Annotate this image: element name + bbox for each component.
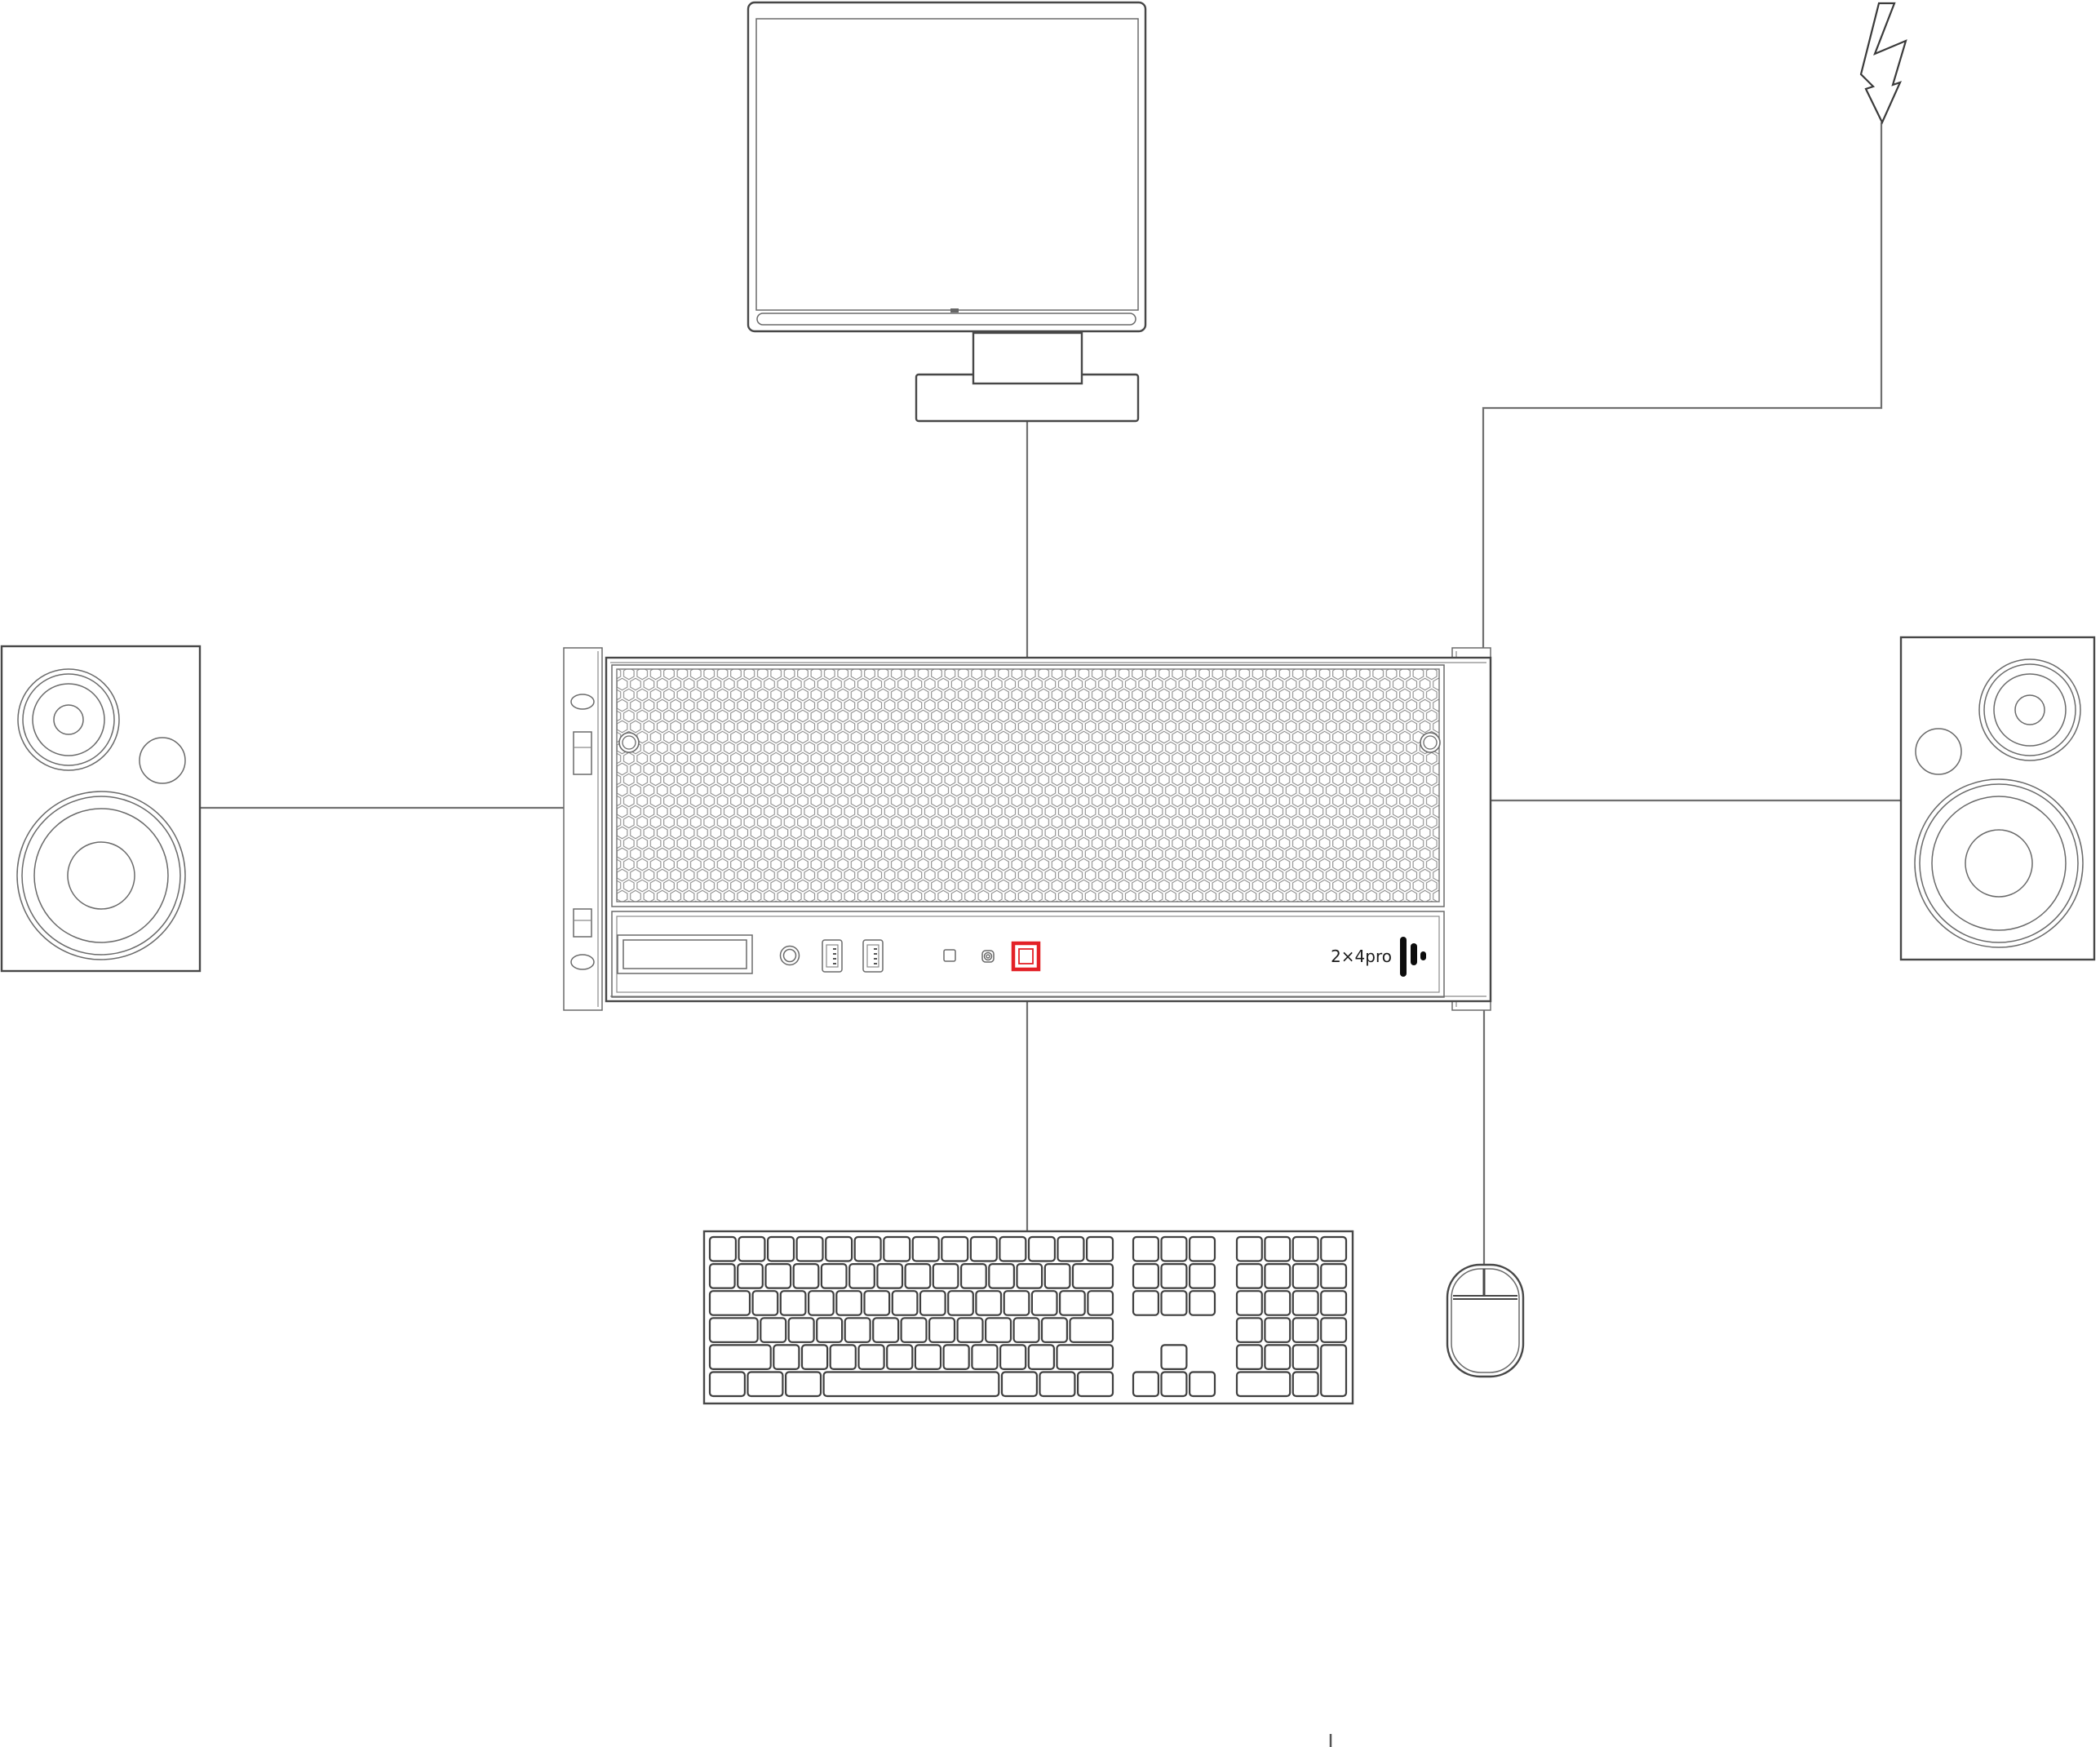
keyboard xyxy=(704,1231,1353,1403)
key xyxy=(1321,1264,1346,1288)
key xyxy=(1237,1318,1262,1342)
key xyxy=(1237,1345,1262,1369)
key xyxy=(999,1237,1026,1261)
key xyxy=(710,1291,750,1315)
key xyxy=(884,1237,910,1261)
key xyxy=(1265,1318,1290,1342)
key xyxy=(1073,1264,1113,1288)
key xyxy=(786,1372,821,1397)
key xyxy=(809,1291,834,1315)
key xyxy=(1162,1264,1187,1288)
key xyxy=(789,1318,814,1342)
right-speaker xyxy=(1901,637,2094,960)
key xyxy=(873,1318,898,1342)
key xyxy=(1087,1237,1113,1261)
key xyxy=(710,1318,758,1342)
key xyxy=(1029,1345,1054,1369)
key xyxy=(1162,1237,1187,1261)
mouse xyxy=(1447,1265,1523,1377)
key xyxy=(972,1345,997,1369)
key xyxy=(710,1237,736,1261)
key xyxy=(710,1345,771,1369)
key xyxy=(1293,1237,1318,1261)
key xyxy=(859,1345,884,1369)
key xyxy=(1133,1291,1159,1315)
key xyxy=(1190,1264,1215,1288)
key xyxy=(817,1318,842,1342)
monitor-stand-neck xyxy=(973,333,1082,384)
key xyxy=(887,1345,912,1369)
key xyxy=(748,1372,783,1397)
key xyxy=(1265,1264,1290,1288)
key xyxy=(1162,1345,1187,1369)
key xyxy=(971,1237,997,1261)
key xyxy=(710,1264,735,1288)
power-button xyxy=(1013,943,1039,969)
key xyxy=(1293,1291,1318,1315)
key xyxy=(893,1291,918,1315)
monitor-power-led xyxy=(950,308,959,313)
key xyxy=(1058,1237,1084,1261)
key xyxy=(855,1237,881,1261)
vent-grille xyxy=(617,669,1439,902)
key xyxy=(773,1345,799,1369)
key xyxy=(1293,1372,1318,1397)
key xyxy=(913,1237,939,1261)
key xyxy=(1321,1291,1346,1315)
key xyxy=(920,1291,946,1315)
grille-screw-right xyxy=(1420,733,1440,752)
key xyxy=(1032,1291,1057,1315)
key xyxy=(710,1372,745,1397)
power-cable xyxy=(1483,122,1881,658)
key xyxy=(766,1264,791,1288)
key xyxy=(1017,1264,1043,1288)
key xyxy=(1190,1372,1215,1397)
key xyxy=(902,1318,927,1342)
power-bolt-icon xyxy=(1861,3,1906,122)
key xyxy=(1265,1345,1290,1369)
power-input xyxy=(1861,3,1906,122)
key xyxy=(824,1372,999,1397)
key xyxy=(1000,1345,1026,1369)
key xyxy=(822,1264,847,1288)
key xyxy=(933,1264,959,1288)
key xyxy=(836,1291,862,1315)
key xyxy=(1040,1372,1075,1397)
key xyxy=(1237,1372,1290,1397)
key xyxy=(1014,1318,1039,1342)
key xyxy=(802,1345,827,1369)
key xyxy=(906,1264,931,1288)
rack-ear-left xyxy=(564,648,602,1010)
key xyxy=(1265,1237,1290,1261)
key xyxy=(976,1291,1001,1315)
monitor-screen xyxy=(756,19,1138,310)
key xyxy=(1070,1318,1114,1342)
key xyxy=(1004,1291,1030,1315)
key xyxy=(826,1237,852,1261)
key xyxy=(958,1318,983,1342)
key xyxy=(1133,1237,1159,1261)
key xyxy=(753,1291,778,1315)
key xyxy=(1057,1345,1114,1369)
key xyxy=(1133,1372,1159,1397)
key xyxy=(1162,1291,1187,1315)
key xyxy=(845,1318,871,1342)
key xyxy=(1265,1291,1290,1315)
key xyxy=(1237,1291,1262,1315)
key xyxy=(1162,1372,1187,1397)
key xyxy=(768,1237,794,1261)
key xyxy=(760,1318,786,1342)
key xyxy=(986,1318,1011,1342)
left-speaker xyxy=(2,646,200,971)
key xyxy=(1321,1318,1346,1342)
key xyxy=(1321,1237,1346,1261)
key xyxy=(915,1345,941,1369)
key xyxy=(1293,1318,1318,1342)
key xyxy=(961,1264,986,1288)
key xyxy=(794,1264,819,1288)
key xyxy=(1133,1264,1159,1288)
rack-server: 2×4pro xyxy=(564,648,1491,1010)
key xyxy=(1237,1264,1262,1288)
key xyxy=(1088,1291,1113,1315)
key xyxy=(1078,1372,1113,1397)
key xyxy=(1002,1372,1037,1397)
key xyxy=(941,1237,968,1261)
key xyxy=(831,1345,856,1369)
key xyxy=(865,1291,890,1315)
key xyxy=(877,1264,902,1288)
key xyxy=(1042,1318,1067,1342)
key xyxy=(1029,1237,1055,1261)
monitor xyxy=(748,2,1145,421)
key xyxy=(948,1291,973,1315)
setup-diagram: 2×4pro xyxy=(0,0,2100,1747)
key xyxy=(1293,1264,1318,1288)
key xyxy=(781,1291,806,1315)
key xyxy=(1190,1237,1215,1261)
key xyxy=(1293,1345,1318,1369)
key xyxy=(1060,1291,1085,1315)
grille-screw-left xyxy=(619,733,639,752)
key xyxy=(1045,1264,1070,1288)
key xyxy=(739,1237,765,1261)
key xyxy=(797,1237,823,1261)
key xyxy=(1237,1237,1262,1261)
key xyxy=(849,1264,875,1288)
key xyxy=(1190,1291,1215,1315)
key xyxy=(944,1345,969,1369)
key xyxy=(1321,1345,1346,1396)
key xyxy=(738,1264,763,1288)
key xyxy=(989,1264,1014,1288)
key xyxy=(929,1318,955,1342)
brand-label: 2×4pro xyxy=(1331,947,1392,966)
